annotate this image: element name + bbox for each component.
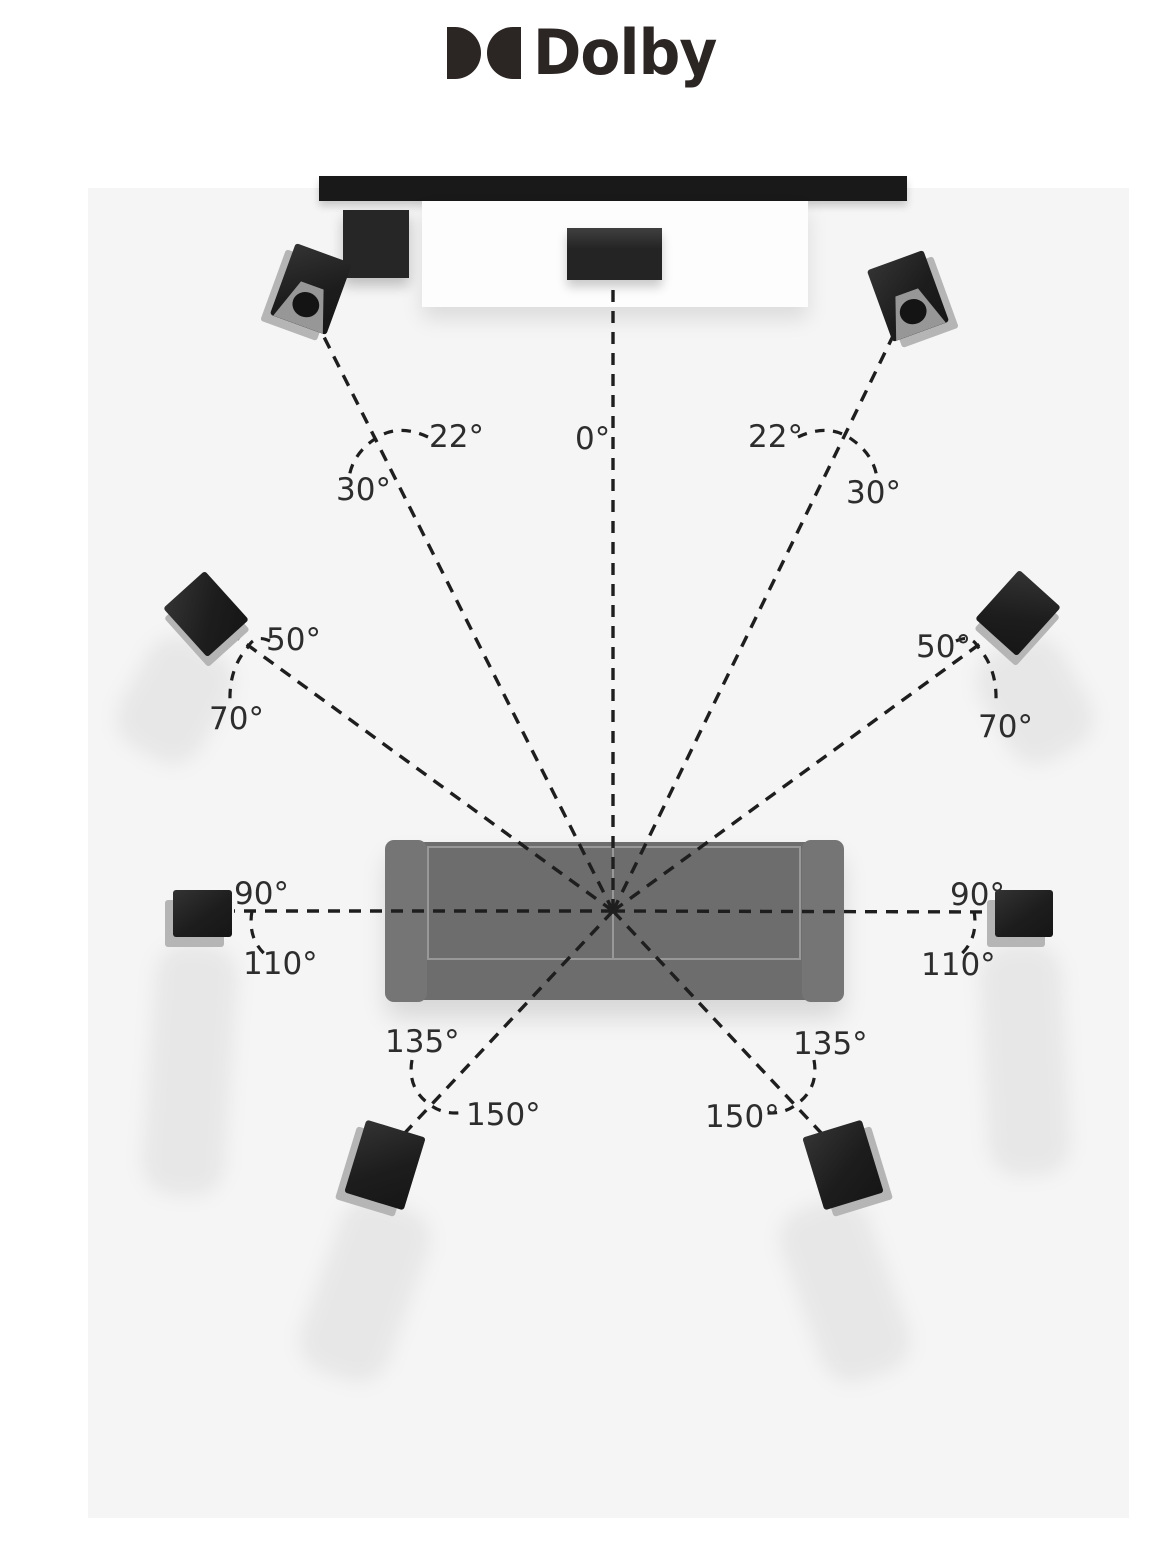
sofa-armrest-right <box>802 840 844 1002</box>
label-rr-150: 150° <box>705 1102 780 1133</box>
center-speaker <box>567 228 662 280</box>
label-0deg: 0° <box>575 424 610 455</box>
sofa-armrest-left <box>385 840 427 1002</box>
label-fl-22: 22° <box>429 422 484 453</box>
label-fr-22: 22° <box>748 422 803 453</box>
page: Dolby 0° 22° 30° <box>0 0 1176 1550</box>
label-rl-150: 150° <box>466 1100 541 1131</box>
label-fl-30: 30° <box>336 475 391 506</box>
sofa <box>387 842 842 1000</box>
brand-wordmark: Dolby <box>533 22 716 84</box>
label-wr-70: 70° <box>978 712 1033 743</box>
tv-screen <box>319 176 907 201</box>
component-box <box>343 210 409 278</box>
label-sl-90: 90° <box>234 879 289 910</box>
label-sl-110: 110° <box>243 949 318 980</box>
label-wl-50: 50° <box>266 625 321 656</box>
label-sr-110: 110° <box>921 950 996 981</box>
side-left-speaker <box>173 890 232 937</box>
sofa-seat <box>427 846 801 960</box>
dolby-logo: Dolby <box>0 18 1176 88</box>
sofa-seat-divider <box>612 846 614 960</box>
speaker-cabinet <box>995 890 1053 937</box>
double-d-icon <box>447 26 521 80</box>
speaker-cabinet <box>173 890 232 937</box>
label-wr-50: 50° <box>916 632 971 663</box>
label-fr-30: 30° <box>846 478 901 509</box>
side-right-speaker <box>995 890 1053 937</box>
label-wl-70: 70° <box>209 704 264 735</box>
label-rl-135: 135° <box>385 1027 460 1058</box>
label-rr-135: 135° <box>793 1029 868 1060</box>
